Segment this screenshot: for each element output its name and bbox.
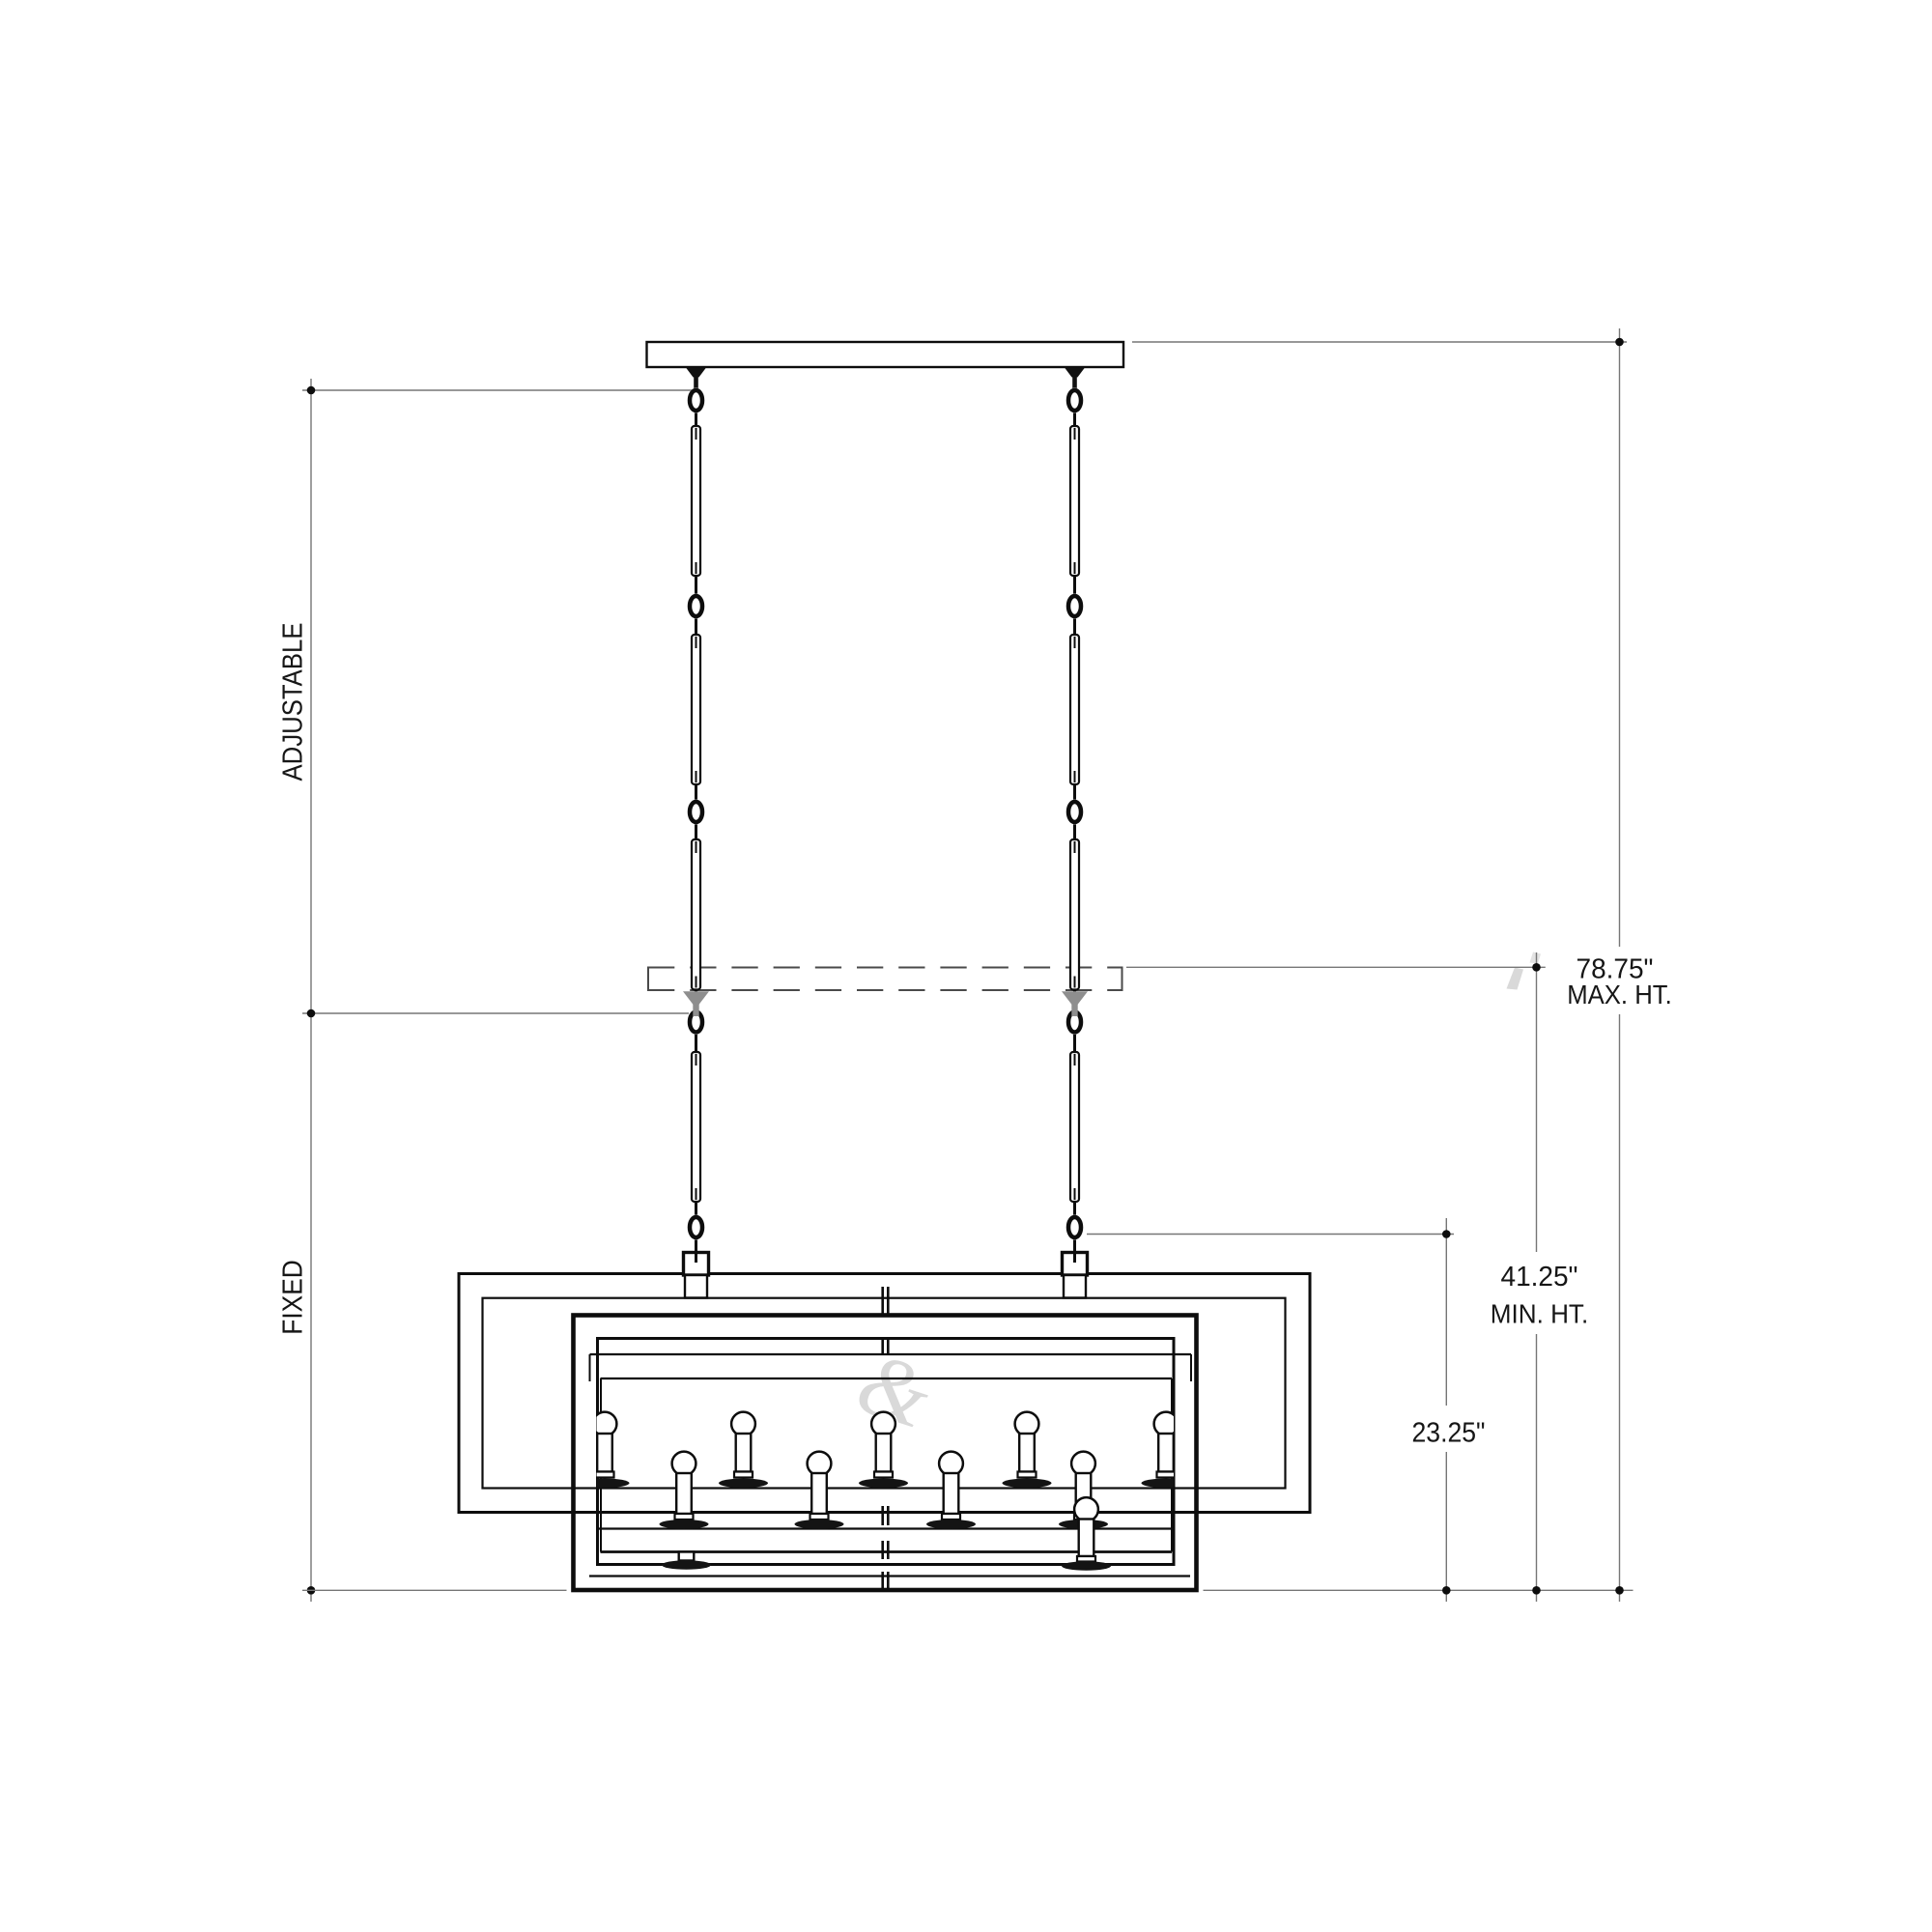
svg-text:FIXED: FIXED	[278, 1260, 309, 1335]
svg-text:MIN. HT.: MIN. HT.	[1491, 1299, 1589, 1329]
svg-text:41.25": 41.25"	[1501, 1262, 1578, 1293]
svg-text:MAX. HT.: MAX. HT.	[1567, 980, 1672, 1009]
svg-text:23.25": 23.25"	[1412, 1418, 1486, 1449]
svg-text:ADJUSTABLE: ADJUSTABLE	[278, 623, 309, 781]
